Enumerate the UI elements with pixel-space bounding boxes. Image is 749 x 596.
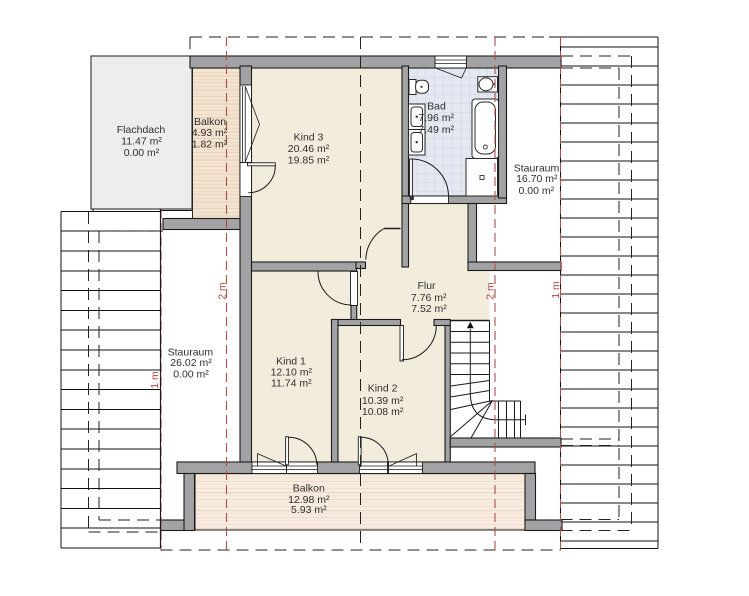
svg-text:7.96 m²: 7.96 m² — [418, 112, 454, 124]
svg-text:2 m: 2 m — [485, 282, 497, 300]
svg-text:19.85 m²: 19.85 m² — [288, 155, 330, 167]
svg-text:1.82 m²: 1.82 m² — [192, 138, 228, 150]
svg-text:Kind 3: Kind 3 — [294, 132, 324, 144]
svg-text:Kind 2: Kind 2 — [368, 383, 398, 395]
svg-text:11.47 m²: 11.47 m² — [121, 136, 162, 148]
svg-text:4.93 m²: 4.93 m² — [192, 127, 228, 139]
svg-text:7.76 m²: 7.76 m² — [411, 292, 447, 304]
svg-text:0.00 m²: 0.00 m² — [173, 369, 209, 381]
svg-text:7.49 m²: 7.49 m² — [418, 124, 454, 136]
svg-text:20.46 m²: 20.46 m² — [288, 143, 330, 155]
svg-text:0.00 m²: 0.00 m² — [124, 147, 160, 159]
svg-text:11.74 m²: 11.74 m² — [271, 378, 312, 390]
svg-text:Balkon: Balkon — [293, 483, 325, 495]
svg-text:1 m: 1 m — [149, 371, 161, 389]
svg-text:7.52 m²: 7.52 m² — [411, 303, 447, 315]
svg-text:26.02 m²: 26.02 m² — [170, 357, 212, 369]
svg-text:Bad: Bad — [427, 100, 446, 112]
svg-text:10.08 m²: 10.08 m² — [362, 406, 404, 418]
svg-text:Flachdach: Flachdach — [117, 124, 166, 136]
svg-text:0.00 m²: 0.00 m² — [518, 185, 554, 197]
svg-text:16.70 m²: 16.70 m² — [516, 173, 558, 185]
svg-text:2 m: 2 m — [217, 282, 229, 300]
svg-text:Flur: Flur — [417, 280, 436, 292]
svg-text:Balkon: Balkon — [194, 116, 226, 128]
svg-text:1 m: 1 m — [550, 281, 562, 299]
svg-text:5.93 m²: 5.93 m² — [291, 504, 327, 516]
